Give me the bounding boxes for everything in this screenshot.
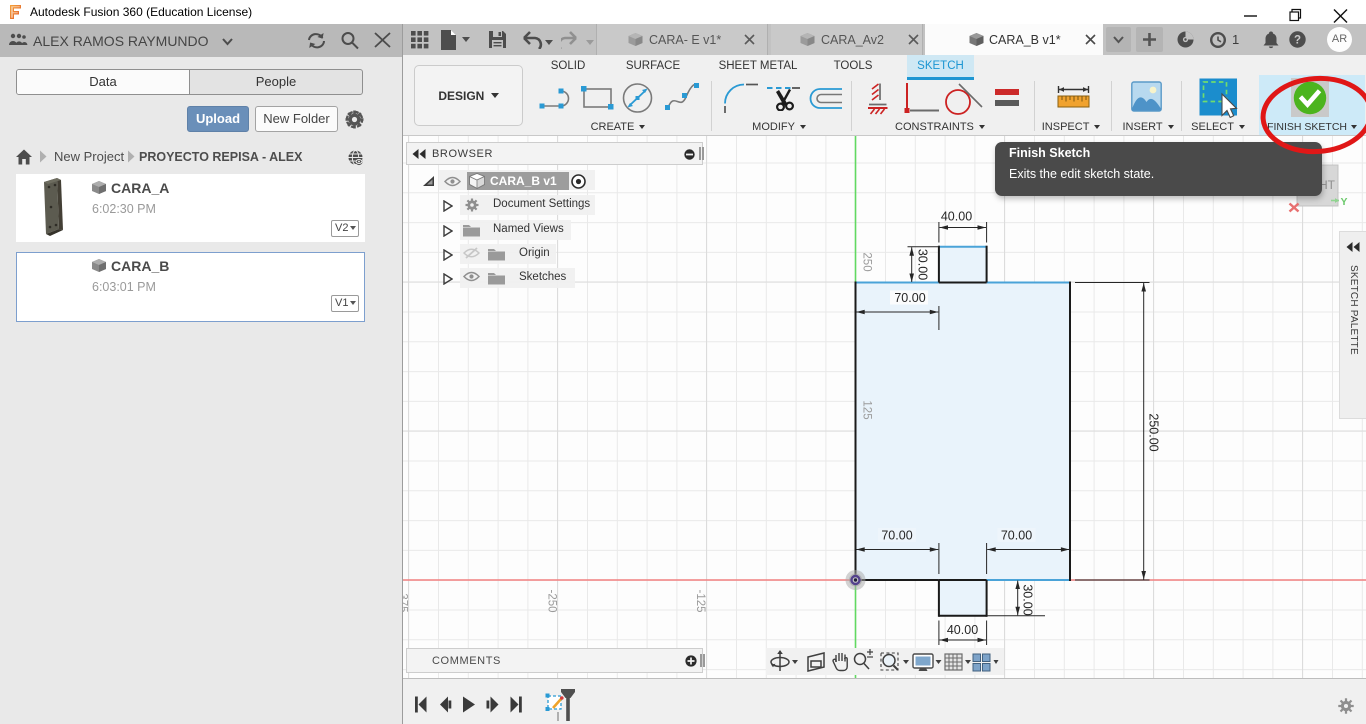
svg-text:-375: -375 [403,589,409,612]
svg-text:70.00: 70.00 [894,291,925,305]
svg-text:250.00: 250.00 [1147,413,1161,451]
svg-text:?: ? [1294,35,1301,47]
svg-text:Y: Y [1341,196,1348,208]
svg-text:125: 125 [861,400,873,419]
svg-text:250: 250 [861,252,873,271]
svg-text:-125: -125 [694,589,706,612]
svg-text:-250: -250 [546,589,558,612]
svg-text:70.00: 70.00 [881,529,912,543]
svg-text:40.00: 40.00 [941,210,972,224]
svg-text:70.00: 70.00 [1001,529,1032,543]
svg-text:40.00: 40.00 [947,623,978,637]
svg-text:30.00: 30.00 [916,249,930,280]
svg-text:30.00: 30.00 [1021,584,1035,615]
